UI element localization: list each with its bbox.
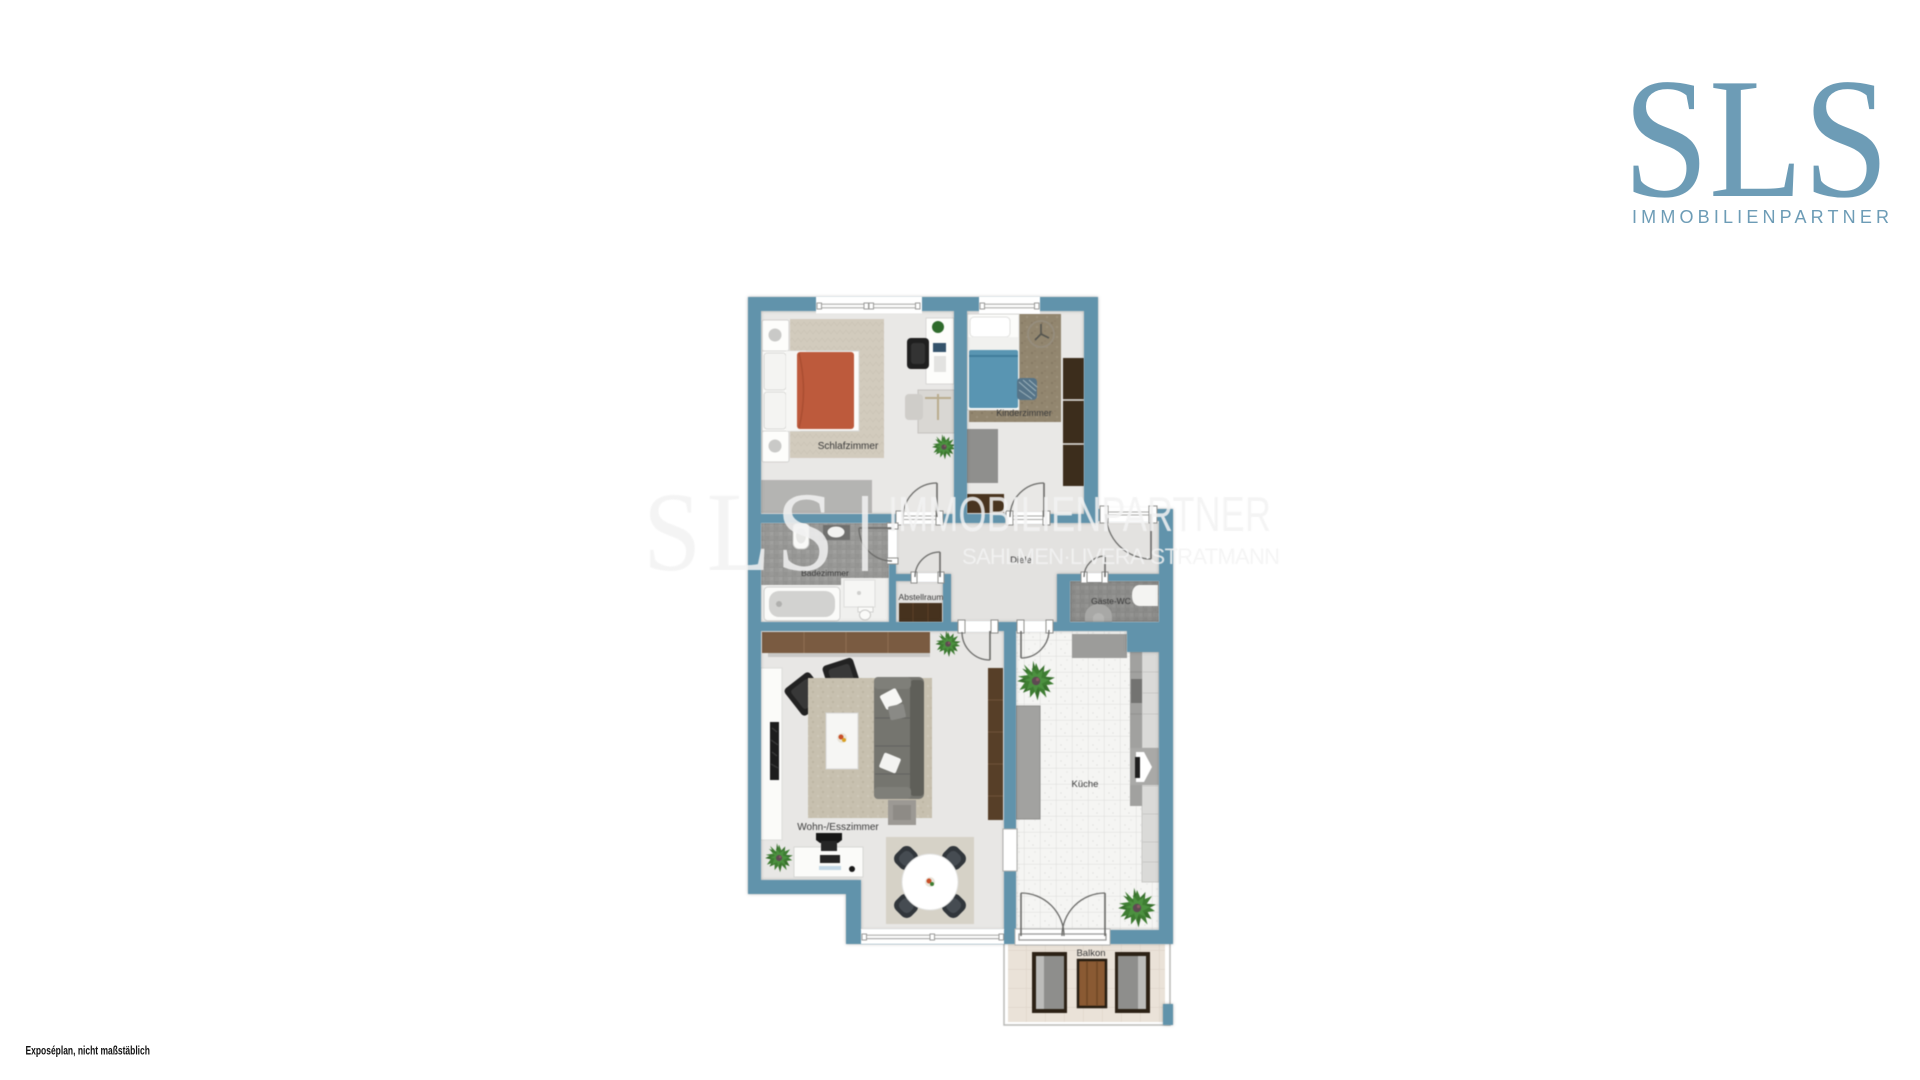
svg-text:Schlafzimmer: Schlafzimmer [818,441,879,452]
svg-text:Wohn-/Esszimmer: Wohn-/Esszimmer [797,822,879,833]
svg-text:Abstellraum: Abstellraum [899,592,944,602]
svg-text:SLS: SLS [643,470,840,595]
svg-text:Kinderzimmer: Kinderzimmer [996,408,1052,418]
svg-text:SLS: SLS [1623,44,1889,234]
svg-text:Balkon: Balkon [1076,948,1105,959]
svg-text:Exposéplan, nicht maßstäblich: Exposéplan, nicht maßstäblich [26,1045,150,1058]
svg-text:Gäste-WC: Gäste-WC [1091,596,1131,606]
svg-text:Küche: Küche [1072,779,1099,790]
svg-text:SAHLMEN·LIVERA·STRATMANN: SAHLMEN·LIVERA·STRATMANN [962,544,1280,569]
svg-text:IMMOBILIENPARTNER: IMMOBILIENPARTNER [888,488,1271,542]
